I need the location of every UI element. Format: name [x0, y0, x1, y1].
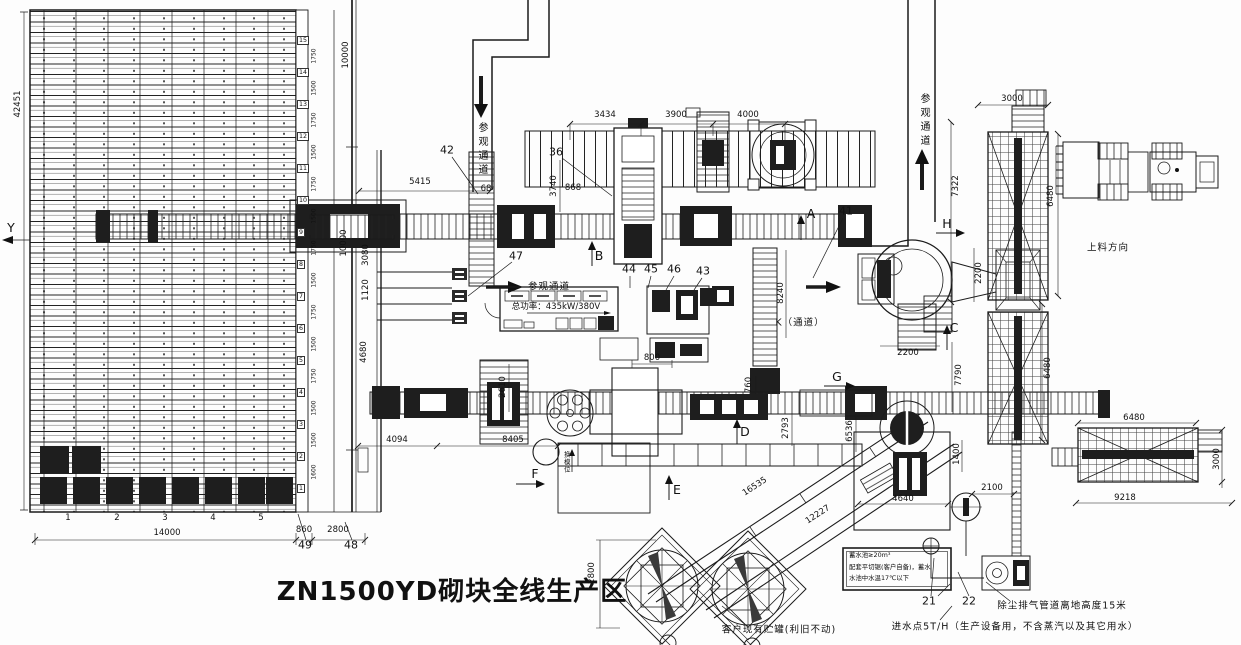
dim: 7322 [952, 175, 961, 197]
rack-row-number: 15 [297, 36, 309, 45]
dim: 12227 [804, 504, 831, 526]
marker-g: G [832, 371, 842, 384]
factory-layout-drawing: ZN1500YD砌块全线生产区 总功率：435kW/380V 参观通道 参观通道… [0, 0, 1241, 645]
rack-row-spacing: 1750 [311, 365, 318, 387]
rack-bay-number: 5 [258, 514, 263, 523]
dim: 3080 [362, 244, 371, 266]
rack-row-number: 12 [297, 132, 309, 141]
dim: 2100 [981, 484, 1003, 493]
rack-row-spacing: 1750 [311, 237, 318, 259]
rack-row-number: 8 [297, 260, 305, 269]
rack-row-spacing: 1500 [311, 397, 318, 419]
dim: 10000 [340, 229, 349, 256]
rack-row-spacing: 1600 [311, 461, 318, 483]
visitor-passage-mid-label: 参观通道 [528, 282, 570, 292]
dust-pipe-note: 除尘排气管道离地高度15米 [997, 601, 1127, 611]
dim: 4000 [737, 111, 759, 120]
water-box-line1: 蓄水池≥20m³ [849, 551, 890, 561]
rack-bay-number: 3 [162, 514, 167, 523]
rack-row-number: 2 [297, 452, 305, 461]
dim: 6480 [1044, 357, 1053, 379]
dim: 42451 [14, 90, 23, 117]
rack-row-number: 14 [297, 68, 309, 77]
rack-row-spacing: 1500 [311, 205, 318, 227]
item-44: 44 [622, 264, 636, 275]
visitor-passage-top-label: 参观通道 [476, 122, 486, 178]
dim: 3900 [665, 111, 687, 120]
water-box-line3: 水池中水温17℃以下 [849, 574, 909, 584]
rack-row-spacing: 1750 [311, 45, 318, 67]
k-passage-label: K（通道） [775, 318, 824, 328]
dim: 6480 [1047, 185, 1056, 207]
rack-row-spacing: 1500 [311, 77, 318, 99]
item-43: 43 [696, 266, 710, 277]
dim: 8405 [502, 436, 524, 445]
marker-e: E [673, 484, 681, 497]
rack-row-number: 3 [297, 420, 305, 429]
dim: 2200 [897, 349, 919, 358]
rack-row-number: 4 [297, 388, 305, 397]
rack-row-number: 1 [297, 484, 305, 493]
drawing-title: ZN1500YD砌块全线生产区 [277, 579, 627, 605]
item-42: 42 [440, 145, 454, 156]
water-box-line2: 配套平切锯(客户自备)，蓄水 [849, 563, 931, 573]
rack-row-spacing: 1750 [311, 109, 318, 131]
dim: 760 [745, 377, 754, 393]
dim: 16535 [741, 476, 768, 498]
marker-a: A [807, 208, 816, 221]
rack-row-spacing: 1750 [311, 301, 318, 323]
rack-bay-number: 4 [210, 514, 215, 523]
dim: 2610 [499, 376, 508, 398]
feed-direction-label: 上料方向 [1087, 243, 1129, 253]
dim: 68 [481, 185, 492, 194]
rack-row-spacing: 1750 [311, 173, 318, 195]
dim: 860 [296, 526, 312, 535]
rack-row-spacing: 1500 [311, 333, 318, 355]
rack-row-number: 5 [297, 356, 305, 365]
item-22: 22 [962, 596, 976, 607]
item-45: 45 [644, 264, 658, 275]
dim: 2800 [327, 526, 349, 535]
water-inlet-note: 进水点5T/H（生产设备用，不含蒸汽以及其它用水） [892, 622, 1139, 632]
dim: 4680 [360, 341, 369, 363]
rack-row-spacing: 1500 [311, 429, 318, 451]
rack-bay-number: 1 [65, 514, 70, 523]
dim: 2793 [782, 417, 791, 439]
item-47: 47 [509, 251, 523, 262]
dim: 9218 [1114, 494, 1136, 503]
dim: 4640 [892, 495, 914, 504]
dim: 3000 [1213, 448, 1222, 470]
rack-row-number: 10 [297, 196, 309, 205]
dim: 8240 [777, 282, 786, 304]
item-46: 46 [667, 264, 681, 275]
marker-y: Y [7, 222, 15, 235]
item-41: 41 [839, 206, 853, 217]
marker-b: B [595, 250, 604, 263]
marker-h: H [942, 218, 951, 231]
dim: 1400 [953, 443, 962, 465]
dim: 3434 [594, 111, 616, 120]
dim: 3000 [1001, 95, 1023, 104]
rack-row-number: 11 [297, 164, 309, 173]
dim: 6536 [846, 420, 855, 442]
rack-bay-number: 2 [114, 514, 119, 523]
rack-row-spacing: 1500 [311, 141, 318, 163]
dim: 2200 [975, 262, 984, 284]
item-36: 36 [549, 147, 563, 158]
item-21: 21 [922, 596, 936, 607]
dim: 2800 [588, 562, 597, 584]
dim: 3740 [550, 175, 559, 197]
marker-f: F [531, 468, 538, 481]
dim: 4094 [386, 436, 408, 445]
marker-d: D [740, 426, 750, 439]
visitor-passage-right-label: 参观通道 [918, 93, 928, 149]
existing-tank-note: 客户现有贮罐(利旧不动) [722, 625, 836, 635]
item-48: 48 [344, 540, 358, 551]
dim: 1120 [362, 279, 371, 301]
rack-row-spacing: 1500 [311, 269, 318, 291]
dim: 14000 [153, 529, 180, 538]
dim: 10000 [342, 41, 351, 68]
dim: 6480 [1123, 414, 1145, 423]
labels-layer: ZN1500YD砌块全线生产区 总功率：435kW/380V 参观通道 参观通道… [0, 0, 1241, 645]
dim: 7790 [955, 364, 964, 386]
rack-row-number: 13 [297, 100, 309, 109]
mold-change-label: 换模位 [563, 451, 570, 474]
item-49: 49 [298, 540, 312, 551]
rack-row-number: 9 [297, 228, 305, 237]
rack-row-number: 6 [297, 324, 305, 333]
marker-c: C [950, 322, 959, 335]
dim: 868 [565, 184, 581, 193]
power-note: 总功率：435kW/380V [512, 303, 600, 312]
rack-row-number: 7 [297, 292, 305, 301]
dim: 800 [644, 354, 660, 363]
dim: 5415 [409, 178, 431, 187]
